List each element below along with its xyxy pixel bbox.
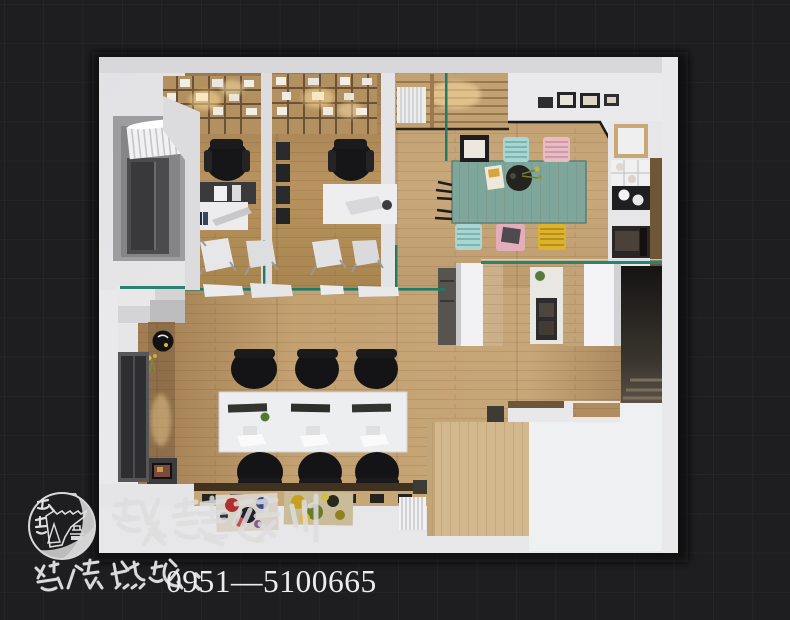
svg-text:0951—5100665: 0951—5100665 [166,564,377,599]
